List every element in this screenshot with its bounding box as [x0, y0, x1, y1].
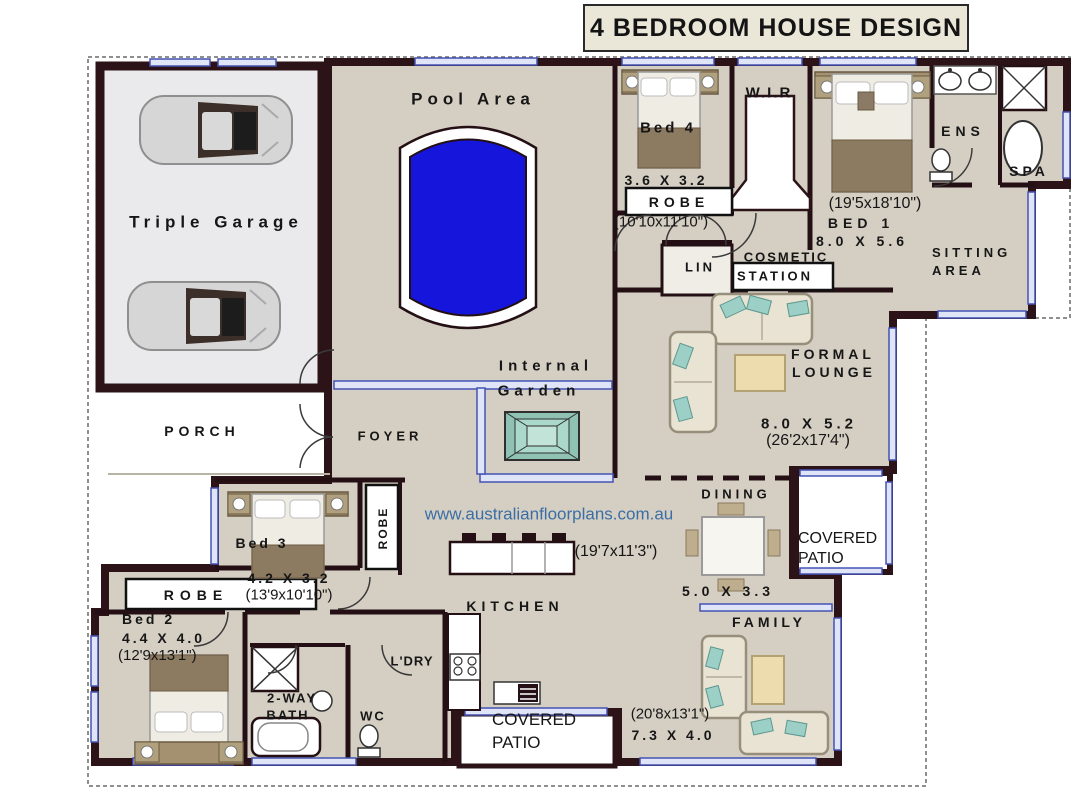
formal-lounge-metric: 8.0 X 5.2: [761, 417, 857, 432]
basin: [969, 72, 991, 90]
formal-lounge-label-1: FORMAL: [791, 347, 875, 361]
bed1-metric: 8.0 X 5.6: [816, 234, 908, 248]
toilet: [360, 725, 378, 747]
dining-imperial: (19'7x11'3"): [575, 544, 658, 560]
covered-patio-right-label-2: PATIO: [798, 551, 844, 567]
stove: [450, 654, 480, 680]
garage-label: Triple Garage: [129, 214, 303, 231]
foyer-label: FOYER: [358, 430, 423, 443]
cosmetic-station-label-2: STATION: [737, 270, 813, 283]
internal-garden-label-2: Garden: [498, 384, 581, 399]
bed3-imperial: (13'9x10'10"): [246, 588, 333, 603]
kitchen-label: KITCHEN: [466, 599, 563, 613]
covered-patio-bottom-label-2: PATIO: [492, 734, 541, 751]
dining-metric: 5.0 X 3.3: [682, 584, 774, 598]
internal-garden-label-1: Internal: [499, 359, 593, 374]
wc-label: WC: [360, 710, 386, 723]
car-top-view: [140, 96, 292, 164]
robe-left-label: ROBE: [164, 588, 228, 602]
plan-title: 4 BEDROOM HOUSE DESIGN: [583, 4, 969, 52]
formal-lounge-imperial: (26'2x17'4"): [766, 433, 850, 449]
two-way-bath-label-2: BATH: [266, 709, 309, 722]
bed2-imperial: (12'9x13'1"): [118, 648, 197, 663]
website-watermark: www.australianfloorplans.com.au: [425, 506, 674, 523]
family-imperial: (20'8x13'1"): [631, 707, 710, 722]
covered-patio-right-label-1: COVERED: [798, 531, 877, 547]
coffee-table: [735, 355, 785, 391]
bed2-label: Bed 2: [122, 612, 175, 626]
bed1-label: BED 1: [828, 216, 894, 230]
coffee-table: [752, 656, 784, 704]
formal-lounge-label-2: LOUNGE: [792, 365, 876, 379]
dining-table: [702, 517, 764, 575]
bed4-label: Bed 4: [640, 121, 696, 136]
two-way-bath-label-1: 2-WAY: [267, 692, 317, 705]
lin-label: LIN: [685, 261, 715, 274]
car-top-view: [128, 282, 280, 350]
bed4-metric: 3.6 X 3.2: [624, 173, 707, 187]
pool-area-label: Pool Area: [411, 91, 535, 108]
spa-label: SPA: [1009, 164, 1049, 178]
cosmetic-station-label-1: COSMETIC: [744, 251, 829, 264]
covered-patio-bottom-label-1: COVERED: [492, 711, 576, 728]
ens-label: ENS: [941, 124, 985, 138]
bed1-imperial: (19'5x18'10"): [829, 196, 922, 212]
bed4-imperial: (10'10x11'10"): [614, 215, 708, 230]
dining-label: DINING: [701, 488, 771, 501]
floor-plan-graphic: [0, 0, 1080, 809]
laundry-label: L'DRY: [391, 655, 434, 668]
bed3-label: Bed 3: [235, 536, 288, 550]
pool: [400, 127, 536, 328]
toilet: [932, 149, 950, 171]
floor-plan-page: 4 BEDROOM HOUSE DESIGN Pool Area Triple …: [0, 0, 1080, 809]
garden-feature: [505, 412, 579, 460]
bed2-metric: 4.4 X 4.0: [122, 631, 205, 645]
family-metric: 7.3 X 4.0: [631, 728, 714, 742]
sitting-area-label-1: SITTING: [932, 246, 1011, 259]
family-label: FAMILY: [732, 615, 806, 629]
sitting-area-label-2: AREA: [932, 264, 985, 277]
basin: [939, 72, 961, 90]
porch-label: PORCH: [164, 424, 240, 438]
bed4-robe-label: ROBE: [649, 195, 709, 209]
wir-label: W.I.R: [746, 86, 793, 101]
plan-title-text: 4 BEDROOM HOUSE DESIGN: [590, 14, 962, 43]
bed2-furniture: [135, 655, 243, 764]
robe-vertical-label: ROBE: [377, 507, 389, 550]
bed3-metric: 4.2 X 3.2: [247, 571, 330, 585]
bed1-furniture: [815, 72, 930, 192]
